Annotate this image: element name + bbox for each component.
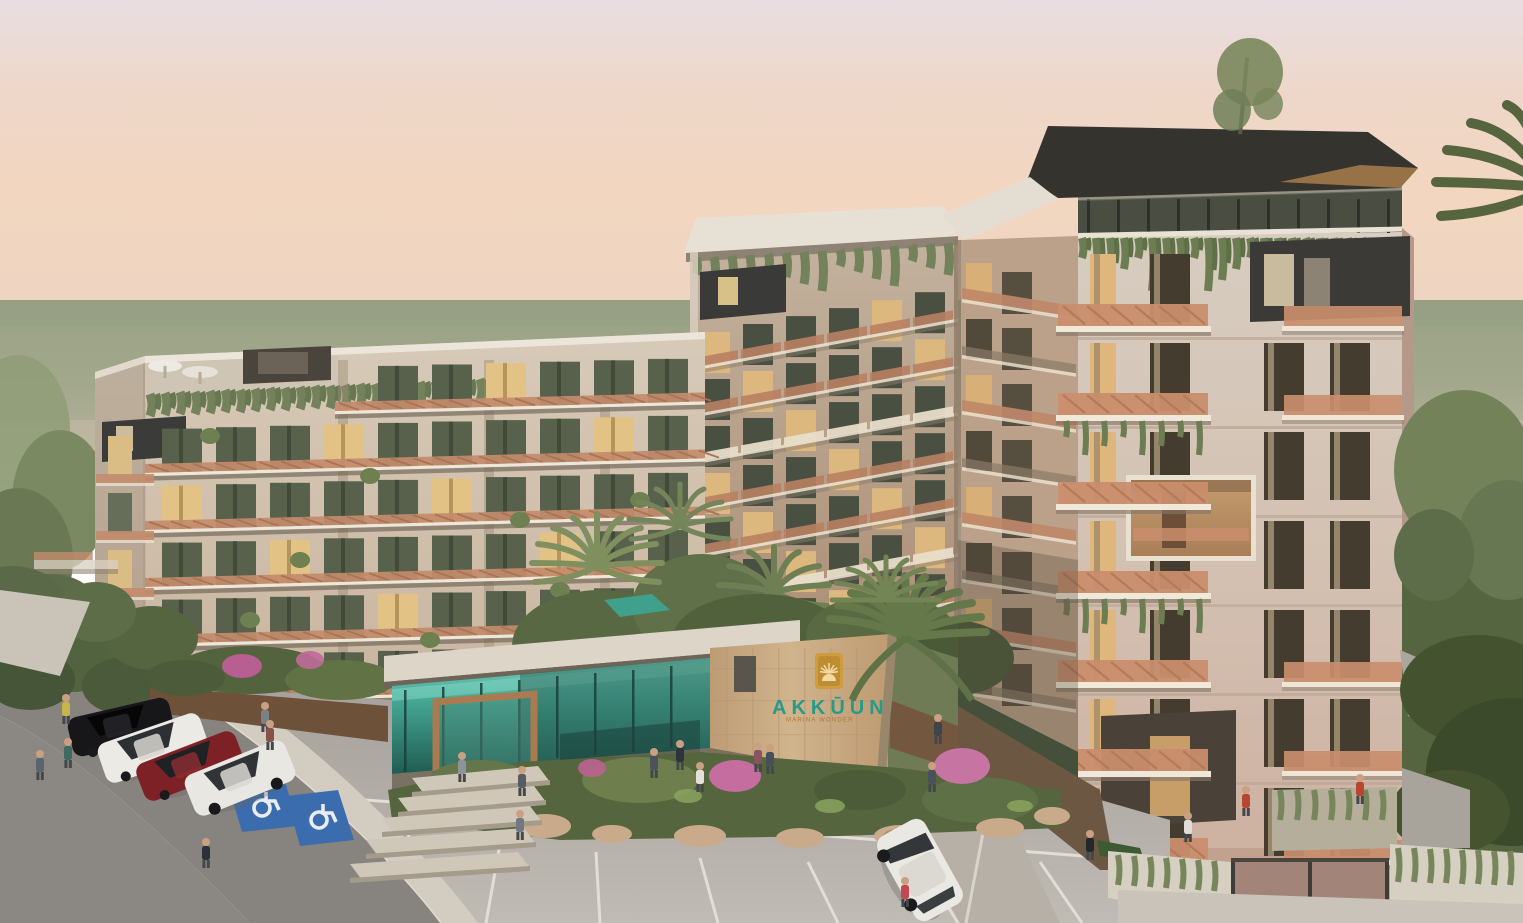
svg-text:AKKŪUN: AKKŪUN bbox=[772, 697, 889, 719]
svg-text:MARINA WONDER: MARINA WONDER bbox=[786, 718, 854, 724]
